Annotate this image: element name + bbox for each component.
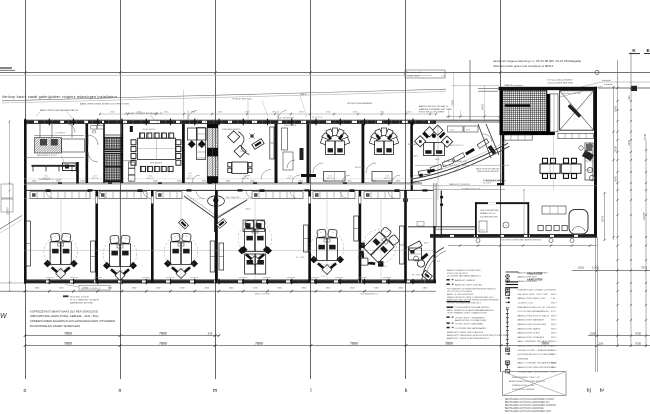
svg-text:0.05: 0.05 bbox=[44, 176, 47, 178]
svg-text:GRASBET.GEB. OVVANG LOODS: GRASBET.GEB. OVVANG LOODS bbox=[518, 289, 553, 292]
svg-text:380 V: 380 V bbox=[551, 303, 557, 305]
svg-text:AANSLUITP. VERW.BEST.GEBOUW EL: AANSLUITP. VERW.BEST.GEBOUW ELEKTRA 3 ST… bbox=[447, 334, 509, 337]
svg-text:60 x 130 P: 60 x 130 P bbox=[483, 182, 492, 184]
svg-text:blok einde asfalt: blok einde asfalt bbox=[407, 71, 422, 74]
svg-text:BESTAANDE GOOTLIJN AANPASSEN C: BESTAANDE GOOTLIJN AANPASSEN CONFOR bbox=[505, 404, 556, 407]
svg-text:WANDCONTACTDOZEN CONFORM NEN 1: WANDCONTACTDOZEN CONFORM NEN 1010 bbox=[447, 296, 494, 299]
svg-text:7800: 7800 bbox=[159, 331, 167, 335]
svg-text:KOFFIEZETAUTOMAAT MAAS DLV RE: KOFFIEZETAUTOMAAT MAAS DLV REF GEWIJZIGD bbox=[30, 309, 98, 313]
svg-text:4700: 4700 bbox=[614, 105, 618, 112]
svg-text:BLOKMIDDELEN NADER TE BEPALEN: BLOKMIDDELEN NADER TE BEPALEN bbox=[30, 324, 80, 328]
svg-text:0.07: 0.07 bbox=[188, 176, 191, 178]
svg-text:100: 100 bbox=[599, 341, 604, 345]
svg-text:AANSLUITEN WAND 1.30: AANSLUITEN WAND 1.30 bbox=[444, 160, 466, 163]
svg-text:BESTAANDE GOOTLIJN AANPASSEN C: BESTAANDE GOOTLIJN AANPASSEN CO bbox=[505, 401, 550, 404]
svg-text:7800: 7800 bbox=[64, 331, 72, 335]
svg-text:m: m bbox=[213, 388, 217, 394]
svg-text:o: o bbox=[24, 388, 27, 394]
svg-text:AANSLUITP. VERW. BEST.GEBOUW: AANSLUITP. VERW. BEST.GEBOUW bbox=[447, 331, 484, 334]
svg-text:AANSLUIT GRANIET: AANSLUIT GRANIET bbox=[455, 279, 476, 282]
svg-text:0.12: 0.12 bbox=[328, 176, 331, 178]
svg-text:h²: h² bbox=[600, 388, 605, 394]
svg-text:AANSLUITEN: AANSLUITEN bbox=[527, 278, 543, 281]
svg-text:7630: 7630 bbox=[635, 331, 642, 335]
svg-text:VERGADEREN: VERGADEREN bbox=[150, 161, 163, 164]
svg-text:OPGELET BKH 2700+: OPGELET BKH 2700+ bbox=[232, 98, 253, 100]
svg-text:ST GOOT 1 B: ST GOOT 1 B bbox=[312, 117, 322, 119]
svg-text:1 013: 1 013 bbox=[441, 75, 446, 77]
svg-text:0.18: 0.18 bbox=[321, 276, 324, 278]
svg-text:TOILETTEN VOORZIEN VAN GRASBET: TOILETTEN VOORZIEN VAN GRASBETONTEGELS bbox=[501, 238, 542, 241]
svg-text:0.16: 0.16 bbox=[176, 276, 179, 278]
svg-text:AANSLUITING KOFFIEZETAUTOM: AANSLUITING KOFFIEZETAUTOM bbox=[518, 345, 553, 348]
svg-text:KAST 2: KAST 2 bbox=[245, 208, 251, 211]
svg-text:WERKEN 1+2: WERKEN 1+2 bbox=[355, 167, 365, 169]
svg-text:40 + 1: 40 + 1 bbox=[358, 257, 363, 259]
svg-text:BESTAAND: BESTAAND bbox=[408, 143, 418, 146]
svg-text:STANDAARDWERKPL: STANDAARDWERKPL bbox=[222, 128, 241, 131]
svg-text:AFWERKVLOER 50 BV: AFWERKVLOER 50 BV bbox=[486, 179, 507, 182]
svg-text:h): h) bbox=[587, 388, 592, 394]
svg-text:AANSLUITP. VERW. ELEKTRA HWA G: AANSLUITP. VERW. ELEKTRA HWA GOOT bbox=[447, 337, 490, 340]
svg-text:AANSLUITING GRP.K. 2400: AANSLUITING GRP.K. 2400 bbox=[518, 297, 547, 300]
svg-text:PLINT. NML 2x OPLOSSEN: PLINT. NML 2x OPLOSSEN bbox=[419, 111, 444, 113]
svg-text:36.6 m: 36.6 m bbox=[480, 230, 486, 232]
svg-text:AANPASSEN BIJ HWA: AANPASSEN BIJ HWA bbox=[70, 301, 93, 304]
svg-text:0.04: 0.04 bbox=[93, 176, 96, 178]
svg-text:▲|●: ▲|● bbox=[506, 306, 511, 309]
svg-text:1010: 1010 bbox=[578, 266, 585, 270]
svg-text:0.15: 0.15 bbox=[115, 278, 118, 280]
svg-text:AANLEG HWA EN VOEDING 380V: AANLEG HWA EN VOEDING 380V bbox=[447, 269, 481, 272]
svg-text:k: k bbox=[405, 388, 408, 394]
svg-text:PLINT AANPASSEN 1.2: PLINT AANPASSEN 1.2 bbox=[360, 293, 378, 296]
svg-text:met hwa-tralling 2400/600: met hwa-tralling 2400/600 bbox=[547, 79, 573, 82]
svg-text:BESTAANDE GOOTLIJN AANPASSEN C: BESTAANDE GOOTLIJN AANPASSEN CON bbox=[505, 410, 551, 413]
svg-text:AANSLUITING CV HWA/COMBI: AANSLUITING CV HWA/COMBI bbox=[455, 319, 486, 322]
svg-text:SPREEKKAMERLEGGERS IN HOLLEWAN: SPREEKKAMERLEGGERS IN HOLLEWANDHULZEN UI… bbox=[30, 319, 115, 323]
svg-text:240: 240 bbox=[208, 331, 213, 335]
svg-text:PL 90: PL 90 bbox=[450, 129, 454, 131]
svg-text:LET OP: KOZIJN 1.2: LET OP: KOZIJN 1.2 bbox=[81, 288, 101, 290]
svg-text:INBOUWKOFEL EMAILKOFEL GEBLEIE: INBOUWKOFEL EMAILKOFEL GEBLEIE - 4244 - … bbox=[30, 314, 99, 318]
svg-text:HOOG. PANELEN 1200 AFM.: HOOG. PANELEN 1200 AFM. bbox=[70, 298, 100, 301]
svg-text:13075: 13075 bbox=[642, 212, 646, 220]
svg-text:RICHTING AFSCHOT VLOERVERW: RICHTING AFSCHOT VLOERVERW bbox=[518, 353, 555, 356]
svg-text:AANSLUITING VAATW: AANSLUITING VAATW bbox=[518, 327, 542, 330]
svg-text:E: E bbox=[646, 48, 649, 53]
svg-text:7800: 7800 bbox=[255, 341, 263, 345]
svg-text:WISSELWERKEN: WISSELWERKEN bbox=[143, 129, 157, 131]
svg-text:3530: 3530 bbox=[614, 145, 618, 152]
svg-text:7800: 7800 bbox=[64, 341, 72, 345]
svg-text:VOORZ. ELEK / GASKRAAN: VOORZ. ELEK / GASKRAAN bbox=[455, 322, 483, 325]
svg-text:n: n bbox=[119, 388, 122, 394]
svg-text:BV + WCD: BV + WCD bbox=[412, 275, 421, 277]
svg-text:stand op 34568 NEN 2580: stand op 34568 NEN 2580 bbox=[547, 82, 574, 85]
svg-text:7800: 7800 bbox=[159, 341, 167, 345]
svg-text:7800: 7800 bbox=[350, 341, 358, 345]
svg-text:t-800: t-800 bbox=[551, 289, 557, 292]
svg-text:GOED GEAARD & MET 2 WANDDOZEN: GOED GEAARD & MET 2 WANDDOZEN bbox=[447, 312, 487, 315]
svg-text:380 V: 380 V bbox=[551, 328, 557, 330]
svg-text:INPANDIG 23.5 m2: INPANDIG 23.5 m2 bbox=[480, 212, 496, 215]
svg-text:380 V: 380 V bbox=[551, 324, 557, 326]
svg-text:HWA 90 BALIE VAR AFM: HWA 90 BALIE VAR AFM bbox=[477, 170, 499, 173]
svg-text:5575: 5575 bbox=[601, 215, 605, 222]
svg-text:AANSLUIT GRP.K 2400/380: AANSLUIT GRP.K 2400/380 bbox=[455, 284, 483, 287]
svg-text:AANV. 13 -400 GEWIJZIGD: AANV. 13 -400 GEWIJZIGD bbox=[447, 293, 474, 296]
svg-text:NOG NIET TE VERW. INSTALLATIE: NOG NIET TE VERW. INSTALLATIE J'S bbox=[125, 112, 163, 115]
svg-text:0.06: 0.06 bbox=[148, 176, 151, 178]
svg-text:7530: 7530 bbox=[635, 341, 642, 345]
svg-text:VOORZIEN VAN WATERAANSL: VOORZIEN VAN WATERAANSL bbox=[455, 327, 487, 330]
svg-text:AANL. VERDEELD ONTVANG NR: AANL. VERDEELD ONTVANG NR bbox=[518, 340, 552, 343]
svg-text:0.11: 0.11 bbox=[288, 176, 291, 178]
svg-text:380 V: 380 V bbox=[551, 315, 557, 317]
svg-text:AANSLUITING VN.DROGER: AANSLUITING VN.DROGER bbox=[518, 323, 547, 326]
svg-text:1,001: 1,001 bbox=[592, 266, 599, 270]
svg-text:HWA 80: HWA 80 bbox=[300, 93, 307, 96]
svg-text:NOG NADER VOORZIEN BETREKKING: NOG NADER VOORZIEN BETREKKING HWA LTD bbox=[447, 287, 496, 290]
svg-text:380 V: 380 V bbox=[551, 333, 557, 335]
svg-text:0.17: 0.17 bbox=[249, 280, 252, 282]
svg-text:NOG WEL KOZIJN: NOG WEL KOZIJN bbox=[70, 296, 89, 298]
svg-text:3600: 3600 bbox=[614, 175, 618, 182]
svg-text:0.19: 0.19 bbox=[383, 266, 386, 268]
svg-text:STELPOST 400 EUR: STELPOST 400 EUR bbox=[447, 273, 468, 275]
svg-text:RANDAFW.TEGELS B.V 30 1 HR: RANDAFW.TEGELS B.V 30 1 HR bbox=[518, 306, 551, 309]
svg-text:KASTRUIMTE 2.10 VLG: KASTRUIMTE 2.10 VLG bbox=[37, 154, 57, 157]
svg-text:GELUIDW. VENT. +150 / 2 HR: GELUIDW. VENT. +150 / 2 HR bbox=[518, 294, 548, 296]
svg-text:380 V: 380 V bbox=[551, 350, 557, 352]
svg-text:BESTAANDE GOOTLIJN AANPASSEN C: BESTAANDE GOOTLIJN AANPASSEN CONFO bbox=[505, 398, 554, 401]
svg-text:WANDGOOT RONDOM: WANDGOOT RONDOM bbox=[449, 183, 470, 186]
svg-text:AFMETINGEN VLGS NEN-EN 81-70: AFMETINGEN VLGS NEN-EN 81-70 bbox=[509, 380, 546, 383]
svg-text:380 V: 380 V bbox=[551, 320, 557, 322]
svg-text:AANSLUITING VERLICHTINGSPUNT: AANSLUITING VERLICHTINGSPUNT bbox=[518, 366, 556, 369]
svg-text:Verlopen einde goten met voets: Verlopen einde goten met voetsteun is 80… bbox=[493, 64, 554, 68]
svg-text:23975: 23975 bbox=[6, 207, 10, 215]
svg-text:AANLEGGEN: AANLEGGEN bbox=[527, 273, 543, 276]
svg-text:3750: 3750 bbox=[451, 99, 455, 106]
svg-text:meubilair: meubilair bbox=[602, 79, 611, 82]
svg-text:OPSTELP. HSB BINNENW.: OPSTELP. HSB BINNENW. bbox=[347, 103, 373, 105]
svg-text:GOOTST.HW.VERWARMINGSL: GOOTST.HW.VERWARMINGSL bbox=[518, 310, 550, 313]
svg-text:380 V: 380 V bbox=[551, 346, 557, 348]
svg-text:GESLOTEN BERGING: GESLOTEN BERGING bbox=[480, 210, 499, 212]
svg-text:estimatie: estimatie bbox=[604, 83, 614, 86]
svg-text:0.09: 0.09 bbox=[240, 151, 243, 153]
svg-text:E-15: E-15 bbox=[551, 311, 556, 313]
svg-text:WANDEN IN VERBAND MET TWEE: WANDEN IN VERBAND MET TWEE bbox=[419, 108, 452, 111]
svg-text:40 + 1 WP: 40 + 1 WP bbox=[296, 257, 305, 259]
svg-text:AANSLUITING KOELK: AANSLUITING KOELK bbox=[518, 332, 541, 335]
svg-text:380 V: 380 V bbox=[551, 307, 557, 309]
svg-text:zie det. 204-11: zie det. 204-11 bbox=[407, 75, 421, 78]
svg-text:AANV. RESERVE IN WAND HWA AANP: AANV. RESERVE IN WAND HWA AANPASSING bbox=[447, 309, 494, 312]
svg-text:AANSLUITEN IN MSA, RUIMTE 0.05: AANSLUITEN IN MSA, RUIMTE 0.05 OPEN GOTE… bbox=[80, 102, 129, 105]
svg-text:380 V: 380 V bbox=[551, 341, 557, 343]
svg-text:380 V: 380 V bbox=[551, 354, 557, 356]
svg-text:VOORZIEN VAN WAND AANSLUIT: VOORZIEN VAN WAND AANSLUIT bbox=[447, 275, 482, 278]
svg-text:1545: 1545 bbox=[643, 133, 647, 140]
svg-text:11-2807/1 ru 05: 11-2807/1 ru 05 bbox=[518, 302, 534, 305]
svg-text:AANSLUITEN ELEKTRA-LAADSTATION: AANSLUITEN ELEKTRA-LAADSTATION bbox=[40, 109, 78, 112]
svg-text:aanrijpunt volgens tekening z.: aanrijpunt volgens tekening z.o. 05-13-0… bbox=[493, 59, 582, 63]
svg-text:2910: 2910 bbox=[481, 103, 485, 110]
svg-text:7570: 7570 bbox=[641, 266, 648, 270]
svg-text:SPARING 1900 x 2300: SPARING 1900 x 2300 bbox=[512, 384, 535, 387]
svg-text:BESTAANDE GOOTLIJN AANPASSE: BESTAANDE GOOTLIJN AANPASSE bbox=[505, 407, 544, 410]
svg-text:380 V: 380 V bbox=[551, 337, 557, 339]
svg-text:vuilcontainer 1300 2HK: vuilcontainer 1300 2HK bbox=[562, 92, 581, 95]
svg-text:Wgl + 1/dag 2400: Wgl + 1/dag 2400 bbox=[226, 197, 239, 199]
svg-text:380 V: 380 V bbox=[551, 367, 557, 369]
svg-text:VOLGENS NEN 2580: VOLGENS NEN 2580 bbox=[480, 216, 497, 218]
svg-text:0.02: 0.02 bbox=[437, 261, 440, 263]
svg-text:LEIDING DOORV. + BRANDW.AFD: LEIDING DOORV. + BRANDW.AFD bbox=[518, 349, 553, 352]
svg-text:0.13: 0.13 bbox=[385, 176, 388, 178]
svg-text:PL 90: PL 90 bbox=[466, 129, 470, 131]
svg-text:0.05 PANTRY: 0.05 PANTRY bbox=[55, 131, 66, 134]
svg-text:AANSLUITING OPTAFELB: AANSLUITING OPTAFELB bbox=[518, 336, 545, 339]
svg-text:AANSLUITING WASMACH: AANSLUITING WASMACH bbox=[518, 319, 545, 322]
svg-text:l: l bbox=[310, 388, 311, 394]
svg-text:380 V: 380 V bbox=[551, 363, 557, 365]
svg-text:340: 340 bbox=[627, 95, 631, 100]
svg-text:AANSL. 2400 HWA: AANSL. 2400 HWA bbox=[255, 293, 270, 296]
svg-text:BALIE 50 BV BK PLAFOND: BALIE 50 BV BK PLAFOND bbox=[476, 167, 500, 170]
svg-text:380 V: 380 V bbox=[551, 294, 557, 296]
svg-text:FUNDERING GEREED: FUNDERING GEREED bbox=[512, 389, 535, 391]
svg-text:7800: 7800 bbox=[445, 341, 453, 345]
svg-text:0.14: 0.14 bbox=[55, 276, 58, 278]
svg-text:HWA RWA: HWA RWA bbox=[518, 357, 529, 360]
svg-text:Verloop hwa's vanaf galerijpla: Verloop hwa's vanaf galerijplaten volgen… bbox=[2, 95, 118, 99]
svg-text:LET OP CONDENSATIE IVM HWA LEI: LET OP CONDENSATIE IVM HWA LEIDING bbox=[447, 306, 490, 309]
svg-text:LET OP HOOG 110 MM B: LET OP HOOG 110 MM B bbox=[447, 291, 472, 293]
svg-text:TRAPPE wandcont.: TRAPPE wandcont. bbox=[504, 84, 524, 87]
svg-text:RESERVERING TOEK. LIFT: RESERVERING TOEK. LIFT bbox=[512, 377, 541, 379]
svg-text:AANSLUITEN N.01 500 MAG 51: AANSLUITEN N.01 500 MAG 51 bbox=[419, 105, 449, 108]
svg-text:AANSLUITING ELEK.VL.WA.LN: AANSLUITING ELEK.VL.WA.LN bbox=[518, 314, 550, 317]
